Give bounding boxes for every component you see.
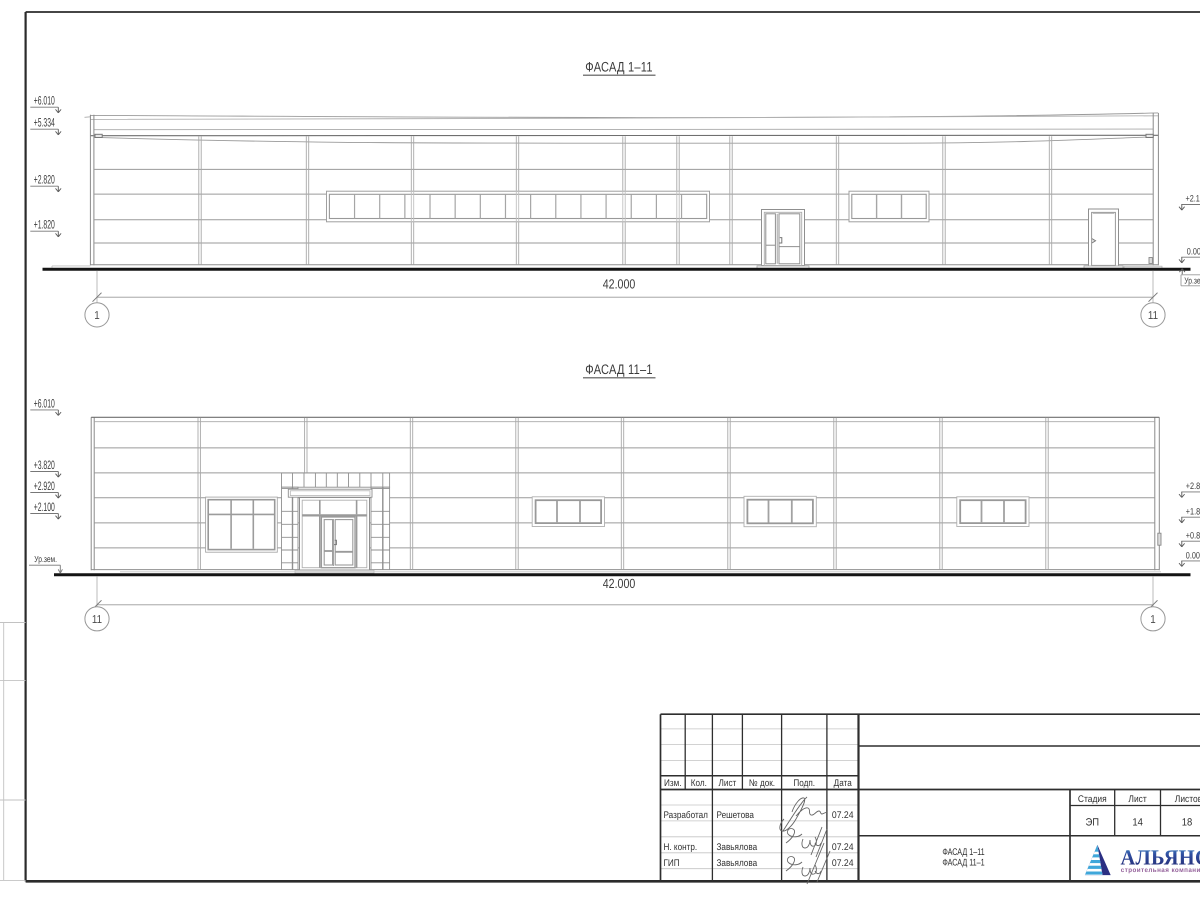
svg-text:1: 1 [94,310,99,322]
svg-text:Н. контр.: Н. контр. [664,842,698,853]
svg-text:11: 11 [1148,310,1158,322]
svg-text:0.000: 0.000 [1186,550,1200,560]
svg-text:18: 18 [1182,816,1193,828]
svg-text:Завьялова: Завьялова [717,858,758,869]
svg-text:Завьялова: Завьялова [717,842,758,853]
svg-text:Разработал: Разработал [664,810,708,821]
svg-text:07.24: 07.24 [832,842,854,853]
svg-text:+1.820: +1.820 [34,218,55,232]
svg-text:+2.920: +2.920 [34,479,55,493]
svg-text:ФАСАД 1–11: ФАСАД 1–11 [585,60,652,75]
svg-text:+6.010: +6.010 [34,396,55,410]
svg-text:+2.100: +2.100 [1186,193,1200,203]
svg-text:14: 14 [1132,816,1143,828]
svg-text:Листов: Листов [1175,794,1200,805]
svg-text:07.24: 07.24 [832,810,854,821]
svg-text:42.000: 42.000 [603,576,636,591]
svg-text:ФАСАД 11–1: ФАСАД 11–1 [585,362,652,377]
svg-text:+0.800: +0.800 [1186,530,1200,540]
svg-text:+2.820: +2.820 [34,173,55,187]
svg-text:ЭП: ЭП [1086,816,1100,828]
svg-text:42.000: 42.000 [603,277,636,292]
svg-text:Лист: Лист [719,778,737,789]
svg-text:Решетова: Решетова [717,810,755,821]
svg-text:Лист: Лист [1128,794,1147,805]
svg-text:0.000: 0.000 [1187,246,1200,256]
svg-text:+6.010: +6.010 [34,94,55,108]
svg-text:+2.100: +2.100 [34,500,55,514]
svg-text:Стадия: Стадия [1078,794,1107,805]
svg-text:Ур.зем.: Ур.зем. [34,554,57,564]
svg-text:1: 1 [1150,614,1155,626]
svg-text:07.24: 07.24 [832,858,854,869]
svg-text:Дата: Дата [834,778,853,789]
svg-text:+1.820: +1.820 [1186,506,1200,516]
svg-text:АЛЬЯНС: АЛЬЯНС [1121,845,1200,869]
svg-text:Ур.зем.: Ур.зем. [1184,276,1200,286]
svg-text:+5.334: +5.334 [34,116,55,130]
svg-text:11: 11 [92,614,102,626]
svg-text:Изм.: Изм. [664,778,681,789]
svg-text:+3.820: +3.820 [34,458,55,472]
svg-text:№ док.: № док. [749,778,775,789]
svg-text:ФАСАД 11–1: ФАСАД 11–1 [942,857,984,868]
svg-text:строительная компания: строительная компания [1121,867,1200,874]
svg-text:ГИП: ГИП [664,858,680,869]
svg-text:Подп.: Подп. [793,778,815,789]
svg-text:Кол.: Кол. [691,778,707,789]
svg-text:+2.820: +2.820 [1186,481,1200,491]
